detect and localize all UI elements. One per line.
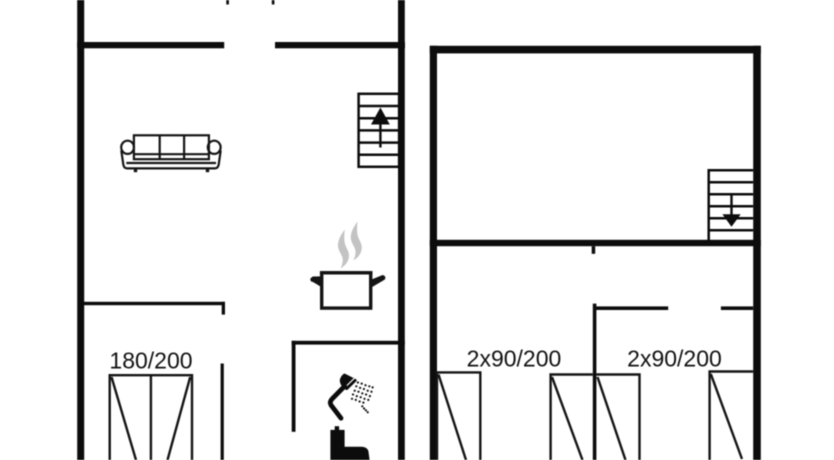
svg-text:180/200: 180/200 (109, 348, 192, 374)
svg-text:2x90/200: 2x90/200 (627, 345, 722, 371)
svg-text:2x90/200: 2x90/200 (467, 345, 562, 371)
